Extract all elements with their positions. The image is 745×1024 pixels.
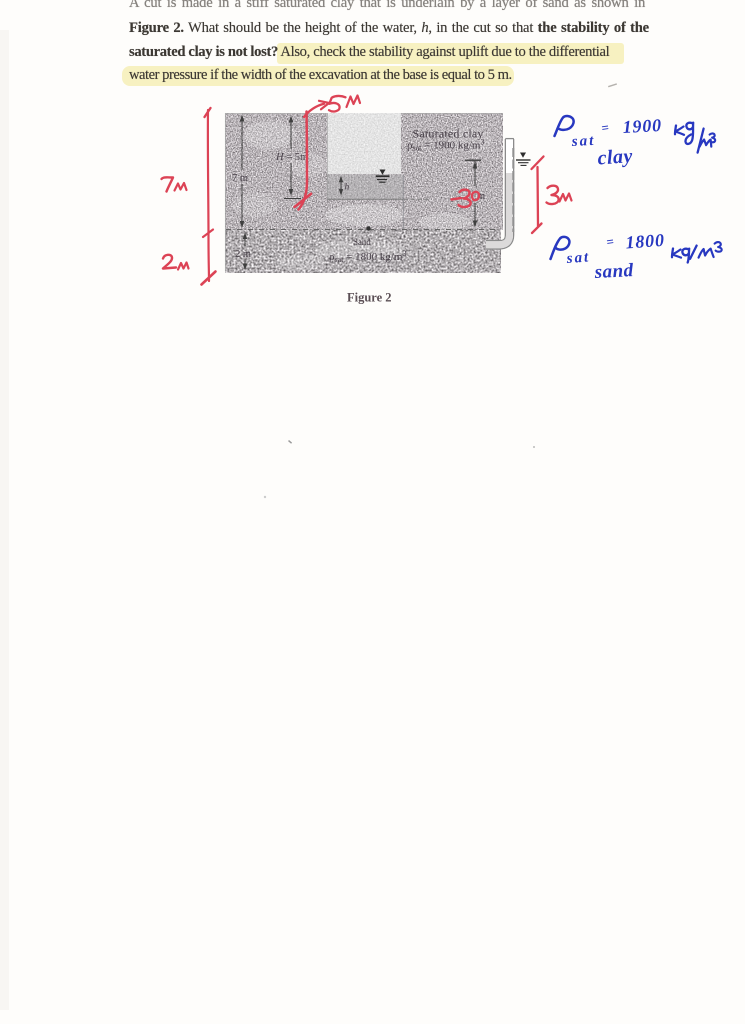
svg-text:=: = [605, 234, 614, 250]
svg-text:Figure 2: Figure 2 [347, 291, 392, 305]
svg-text:=: = [600, 120, 609, 136]
svg-text:clay: clay [597, 145, 634, 169]
svg-text:sat: sat [570, 133, 595, 150]
svg-text:sand: sand [593, 260, 634, 283]
svg-text:Saturated clay: Saturated clay [413, 127, 484, 141]
svg-text:1800: 1800 [625, 230, 666, 253]
svg-text:H = 5m: H = 5m [275, 152, 308, 163]
svg-text:1900: 1900 [622, 115, 662, 137]
svg-text:Sand: Sand [353, 237, 371, 247]
svg-text:7 m: 7 m [232, 173, 248, 184]
svg-text:sat: sat [565, 249, 591, 267]
svg-text:2 m: 2 m [235, 249, 251, 260]
svg-text:h: h [345, 183, 350, 193]
